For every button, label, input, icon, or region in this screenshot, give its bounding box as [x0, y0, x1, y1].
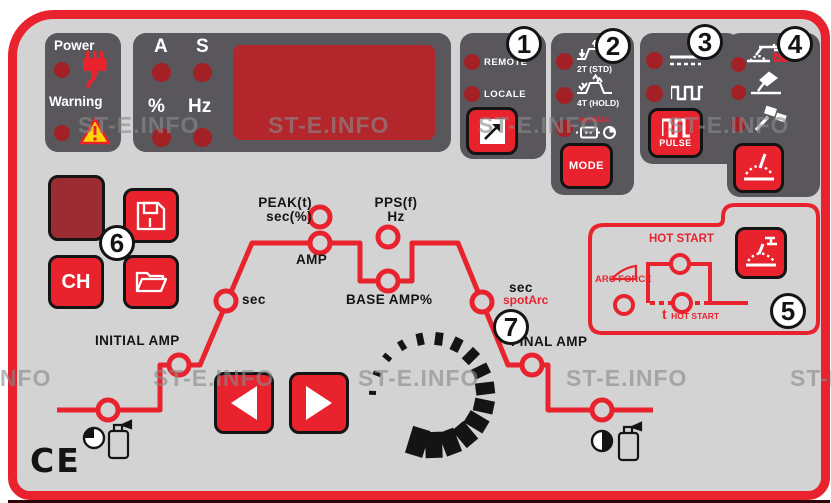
t-hot-start-label: t HOT START [662, 306, 719, 324]
channel-display [48, 175, 105, 241]
channel-button[interactable]: CH [48, 255, 104, 309]
power-led [54, 62, 70, 78]
unit-sec-label: S [196, 36, 209, 58]
mma-led [731, 117, 746, 132]
remote-select-button[interactable] [466, 107, 518, 155]
remote-led [464, 54, 480, 70]
initial-amp-label: INITIAL AMP [95, 333, 180, 348]
callout-1: 1 [506, 26, 542, 62]
unit-percent-label: % [148, 96, 165, 118]
mode-2t-label: 2T (STD) [577, 64, 612, 74]
unit-percent-led [152, 128, 171, 147]
local-label: LOCALE [484, 89, 526, 100]
spot-arc-cycle-label: spotArc [503, 293, 548, 307]
local-led [464, 86, 480, 102]
mode-4t-led [556, 87, 573, 104]
amp-label: AMP [296, 252, 327, 267]
display-box: A S % Hz [133, 33, 451, 152]
hot-start-label: HOT START [649, 233, 714, 245]
pulse-button[interactable]: PULSE [648, 108, 703, 158]
pulse-led [646, 85, 663, 102]
mode-button[interactable]: MODE [560, 143, 613, 189]
spot-arc-timer-icon [576, 124, 618, 141]
power-plug-icon [81, 51, 109, 91]
arc-force-label: ARC FORCE [595, 274, 651, 285]
callout-4: 4 [777, 26, 813, 62]
front-panel: Power Warning A S % Hz [0, 0, 831, 503]
callout-5: 5 [770, 293, 806, 329]
folder-icon [134, 268, 168, 296]
unit-hz-label: Hz [188, 96, 211, 118]
base-amp-label: BASE AMP% [346, 292, 432, 307]
peak-label: PEAK(t) sec(%) [228, 196, 312, 224]
spot-arc-led [556, 120, 573, 137]
unit-amp-led [152, 63, 171, 82]
mma-electrode-icon [749, 105, 789, 135]
callout-2: 2 [595, 28, 631, 64]
unit-hz-led [193, 128, 212, 147]
callout-6: 6 [99, 225, 135, 261]
process-select-button[interactable] [733, 143, 784, 193]
hot-start-torch-icon [743, 236, 779, 270]
spot-arc-label: spotArc [579, 115, 609, 124]
dc-led [646, 52, 663, 69]
channel-button-label: CH [62, 271, 91, 294]
status-box: Power Warning [45, 33, 121, 152]
upslope-sec-label: sec [242, 292, 266, 307]
mode-4t-icon [577, 74, 613, 98]
unit-amp-label: A [154, 36, 168, 58]
pps-label: PPS(f) Hz [366, 196, 426, 224]
warning-label: Warning [49, 94, 103, 109]
tig-lift-led [731, 85, 746, 100]
process-button-torch-icon [741, 152, 777, 184]
floppy-disk-icon [135, 200, 167, 232]
ce-mark: CE [30, 441, 81, 480]
mode-button-label: MODE [569, 160, 604, 172]
arrow-left-icon [229, 384, 259, 422]
tig-hf-led [731, 57, 746, 72]
increase-button[interactable] [289, 372, 349, 434]
tig-lift-icon [749, 71, 789, 99]
pulse-wave-icon [671, 85, 703, 101]
pulse-button-icon [662, 118, 690, 138]
main-display [233, 45, 435, 140]
callout-7: 7 [493, 309, 529, 345]
unit-sec-led [193, 63, 212, 82]
arrow-right-icon [304, 384, 334, 422]
warning-led [54, 125, 70, 141]
mode-2t-led [556, 53, 573, 70]
remote-control-icon [479, 118, 506, 145]
mode-4t-label: 4T (HOLD) [577, 98, 619, 108]
hot-start-button[interactable] [735, 227, 787, 279]
warning-triangle-icon [79, 117, 111, 145]
decrease-button[interactable] [214, 372, 274, 434]
recall-button[interactable] [123, 255, 179, 309]
pulse-button-label: PULSE [659, 138, 692, 148]
callout-3: 3 [687, 24, 723, 60]
